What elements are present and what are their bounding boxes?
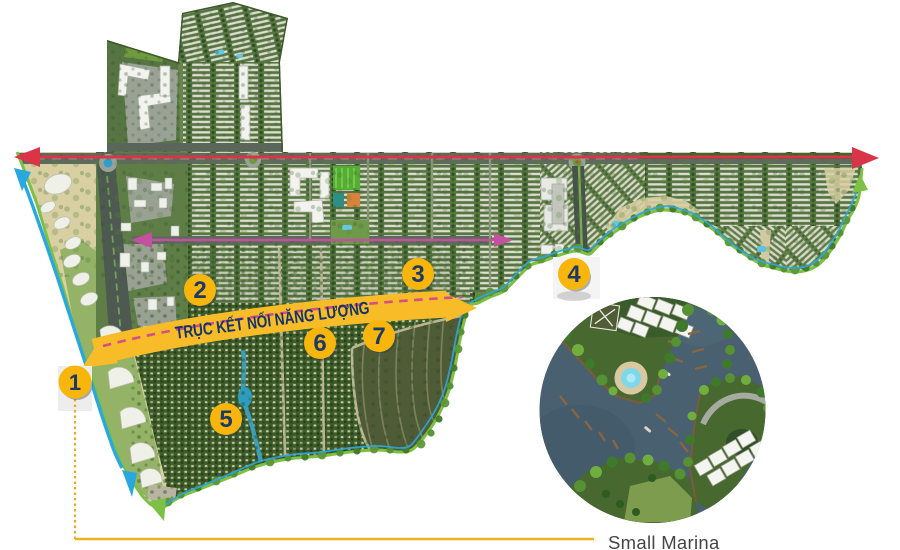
- svg-text:4: 4: [567, 261, 581, 288]
- svg-text:Small Marina: Small Marina: [608, 532, 720, 550]
- svg-text:7: 7: [372, 323, 385, 350]
- svg-text:3: 3: [411, 261, 424, 288]
- svg-text:6: 6: [313, 330, 326, 357]
- svg-text:1: 1: [69, 370, 81, 395]
- svg-text:5: 5: [219, 406, 232, 433]
- svg-text:2: 2: [193, 277, 206, 304]
